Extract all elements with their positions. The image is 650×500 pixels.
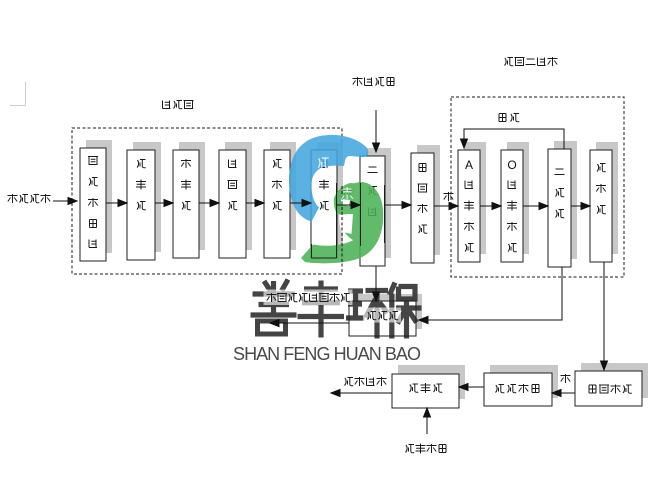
svg-text:A: A [465,158,473,172]
svg-text:SHAN FENG HUAN BAO: SHAN FENG HUAN BAO [233,344,422,364]
svg-text:O: O [507,158,516,172]
